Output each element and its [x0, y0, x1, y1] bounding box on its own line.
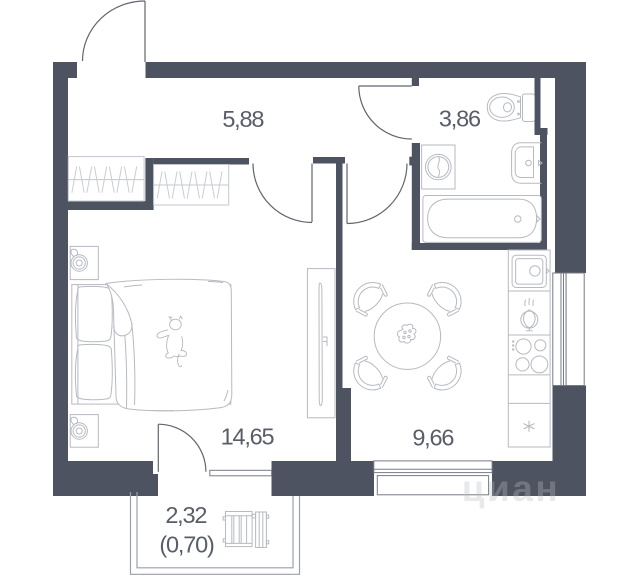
svg-text:(0,70): (0,70): [159, 532, 214, 558]
svg-text:2,32: 2,32: [165, 502, 206, 528]
svg-text:5,88: 5,88: [222, 106, 264, 132]
svg-text:14,65: 14,65: [221, 424, 275, 450]
svg-text:циан: циан: [462, 468, 560, 509]
svg-text:3,86: 3,86: [439, 105, 481, 131]
svg-text:9,66: 9,66: [412, 425, 454, 451]
